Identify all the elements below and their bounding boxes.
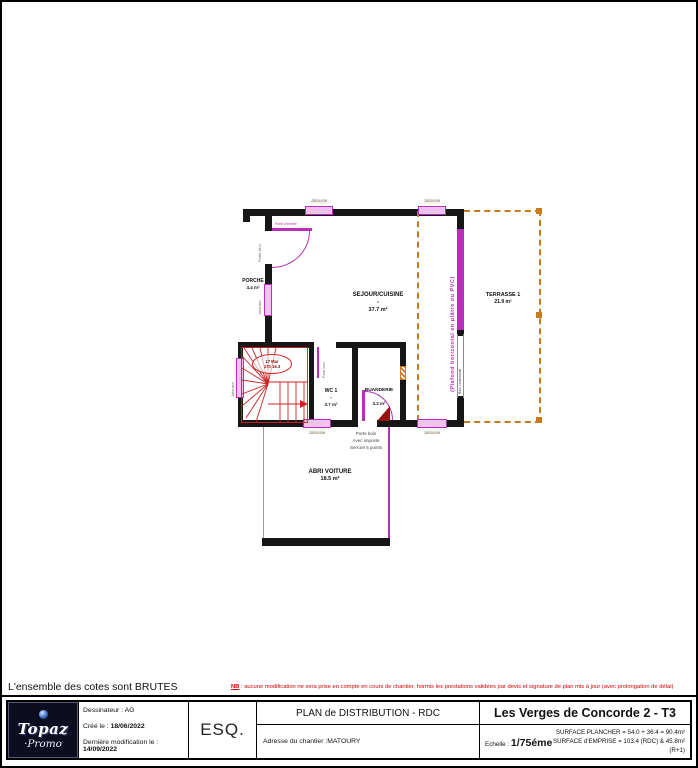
room-label-sejour: SEJOUR/CUISINE - 37.7 m² (338, 291, 418, 315)
wall-bottom-c (377, 420, 417, 427)
modif-date: 14/09/2022 (83, 746, 117, 753)
cree-date: 18/06/2022 (111, 723, 145, 730)
terrace-post-1 (536, 208, 542, 214)
wc-door-label: Porte bois (322, 362, 326, 378)
porte-alu-label: Porte ALU (257, 244, 262, 262)
wc-area: 3.7 m² (316, 402, 346, 408)
room-label-buanderie: BUANDERIE - 3.2 m² (358, 388, 400, 407)
title-block: Topaz ·Promo Dessinateur : AG Créé le : … (6, 700, 692, 760)
echelle-value: 1/75éme (511, 737, 552, 749)
wall-mid-b (336, 342, 406, 348)
wc-name: WC 1 (316, 388, 346, 395)
dessinateur-label: Dessinateur : (83, 707, 125, 714)
dessinateur-row: Dessinateur : AG (83, 707, 184, 714)
plan-title-cell: PLAN de DISTRIBUTION - RDC Adresse du ch… (256, 702, 479, 758)
frame-divider (2, 695, 696, 697)
gem-icon (39, 710, 48, 719)
modif-row: Dernière modification le : 14/09/2022 (83, 739, 184, 753)
wall-bottom-d (447, 420, 464, 427)
cree-label: Créé le : (83, 723, 111, 730)
logo-line1: Topaz (18, 720, 69, 738)
echelle: Echelle : 1/75éme (480, 733, 552, 751)
jalousie-label-bottom-1: Jalousie (301, 430, 333, 435)
abri-left-line (263, 427, 264, 538)
window-jalousie-top-2 (418, 206, 446, 215)
wall-abri-bottom (262, 538, 390, 546)
wall-stub-topleft (243, 209, 250, 222)
window-jalousie-bottom-2 (417, 419, 447, 428)
sejour-name: SEJOUR/CUISINE (338, 291, 418, 299)
room-label-terrasse: TERRASSE 1 21.9 m² (468, 292, 538, 306)
wc-sep: - (316, 395, 346, 402)
jalousie-label-top-1: Jalousie (303, 198, 335, 203)
plafond-note: (Plafond horizontal en plâtre ou PVC) (450, 276, 456, 392)
opening-line-right-2 (463, 334, 464, 398)
phase-cell: ESQ. (188, 702, 256, 758)
plan-title: PLAN de DISTRIBUTION - RDC (257, 702, 479, 725)
plan-sheet: 17 Mar 170 16.3 PORCHE 4.4 m² SEJOUR/CUI… (0, 0, 698, 768)
cree-row: Créé le : 18/06/2022 (83, 723, 184, 730)
logo-line2: ·Promo (24, 738, 62, 750)
adresse-row: Adresse du chantier : MATOURY (257, 725, 479, 758)
serrure-label: Serrure 5 points (340, 445, 392, 452)
jalousie-label-stairs: Jalousie (230, 382, 235, 397)
project-cell: Les Verges de Concorde 2 - T3 Echelle : … (479, 702, 690, 758)
wc-door-leaf (317, 347, 319, 378)
baie-label: Baie coulissante (458, 369, 462, 395)
nb-text: : aucune modification ne sera prise en c… (239, 684, 673, 690)
drawing-info-cell: Dessinateur : AG Créé le : 18/06/2022 De… (78, 702, 188, 758)
window-buanderie-hatch (400, 366, 406, 380)
wall-buanderie-right-a (400, 346, 406, 366)
window-jalousie-top-1 (305, 206, 333, 215)
door-threshold-triangle (377, 406, 390, 421)
buanderie-area: 3.2 m² (358, 401, 400, 407)
floor-plan: 17 Mar 170 16.3 PORCHE 4.4 m² SEJOUR/CUI… (0, 0, 698, 698)
abri-name: ABRI VOITURE (290, 468, 370, 476)
abri-area: 18.5 m² (290, 476, 370, 483)
adresse-value: MATOURY (327, 738, 360, 745)
door-annotation: Porte bois Avec imposte Serrure 5 points (340, 431, 392, 452)
nb-note: NB : aucune modification ne sera prise e… (231, 684, 693, 690)
terrace-dash-top (464, 210, 541, 212)
room-label-wc: WC 1 - 3.7 m² (316, 388, 346, 408)
stair-note-line2: 170 16.3 (264, 364, 280, 369)
entry-door-arc (272, 231, 310, 268)
jalousie-label-bottom-2: Jalousie (416, 430, 448, 435)
project-title: Les Verges de Concorde 2 - T3 (480, 702, 690, 725)
adresse-label: Adresse du chantier : (263, 738, 327, 745)
terrace-post-3 (536, 417, 542, 423)
room-label-porche: PORCHE 4.4 m² (235, 278, 271, 291)
wall-left-a (265, 209, 272, 231)
porte-bois-label: Porte bois (340, 431, 392, 438)
modif-label: Dernière modification le : (83, 739, 158, 746)
porche-name: PORCHE (235, 278, 271, 285)
porche-area: 4.4 m² (235, 285, 271, 291)
sejour-sep: - (338, 299, 418, 307)
jalousie-label-porche: Jalousie (257, 300, 262, 315)
scale-surface-row: Echelle : 1/75éme SURFACE PLANCHER = 54.… (480, 725, 690, 758)
sejour-area: 37.7 m² (338, 307, 418, 314)
terrace-dash-bottom (464, 421, 541, 423)
terrace-post-2 (536, 312, 542, 318)
dessinateur-value: AG (125, 707, 135, 714)
terrasse-area: 21.9 m² (468, 299, 538, 306)
surface-emprise: SURFACE d'EMPRISE = 103.4 (RDC) & 45.8m²… (552, 737, 685, 756)
surfaces: SURFACE PLANCHER = 54.0 + 36.4 = 90.4m² … (552, 728, 690, 756)
echelle-label: Echelle : (485, 741, 511, 748)
roof-overhang-dash (417, 211, 419, 421)
company-logo: Topaz ·Promo (8, 702, 78, 758)
porte-entree-label: Porte d'entrée (275, 222, 297, 226)
jalousie-label-top-2: Jalousie (416, 198, 448, 203)
terrasse-name: TERRASSE 1 (468, 292, 538, 299)
cotes-note: L'ensemble des cotes sont BRUTES (8, 681, 178, 693)
wall-bottom-b (331, 420, 352, 427)
surface-plancher: SURFACE PLANCHER = 54.0 + 36.4 = 90.4m² (552, 728, 685, 737)
wall-right-top (457, 209, 464, 229)
stair-note-ellipse: 17 Mar 170 16.3 (252, 354, 292, 374)
room-label-abri: ABRI VOITURE 18.5 m² (290, 468, 370, 484)
wall-wc-buanderie (352, 346, 358, 427)
avec-imposte-label: Avec imposte (340, 438, 392, 445)
baie-vitree (457, 229, 464, 330)
